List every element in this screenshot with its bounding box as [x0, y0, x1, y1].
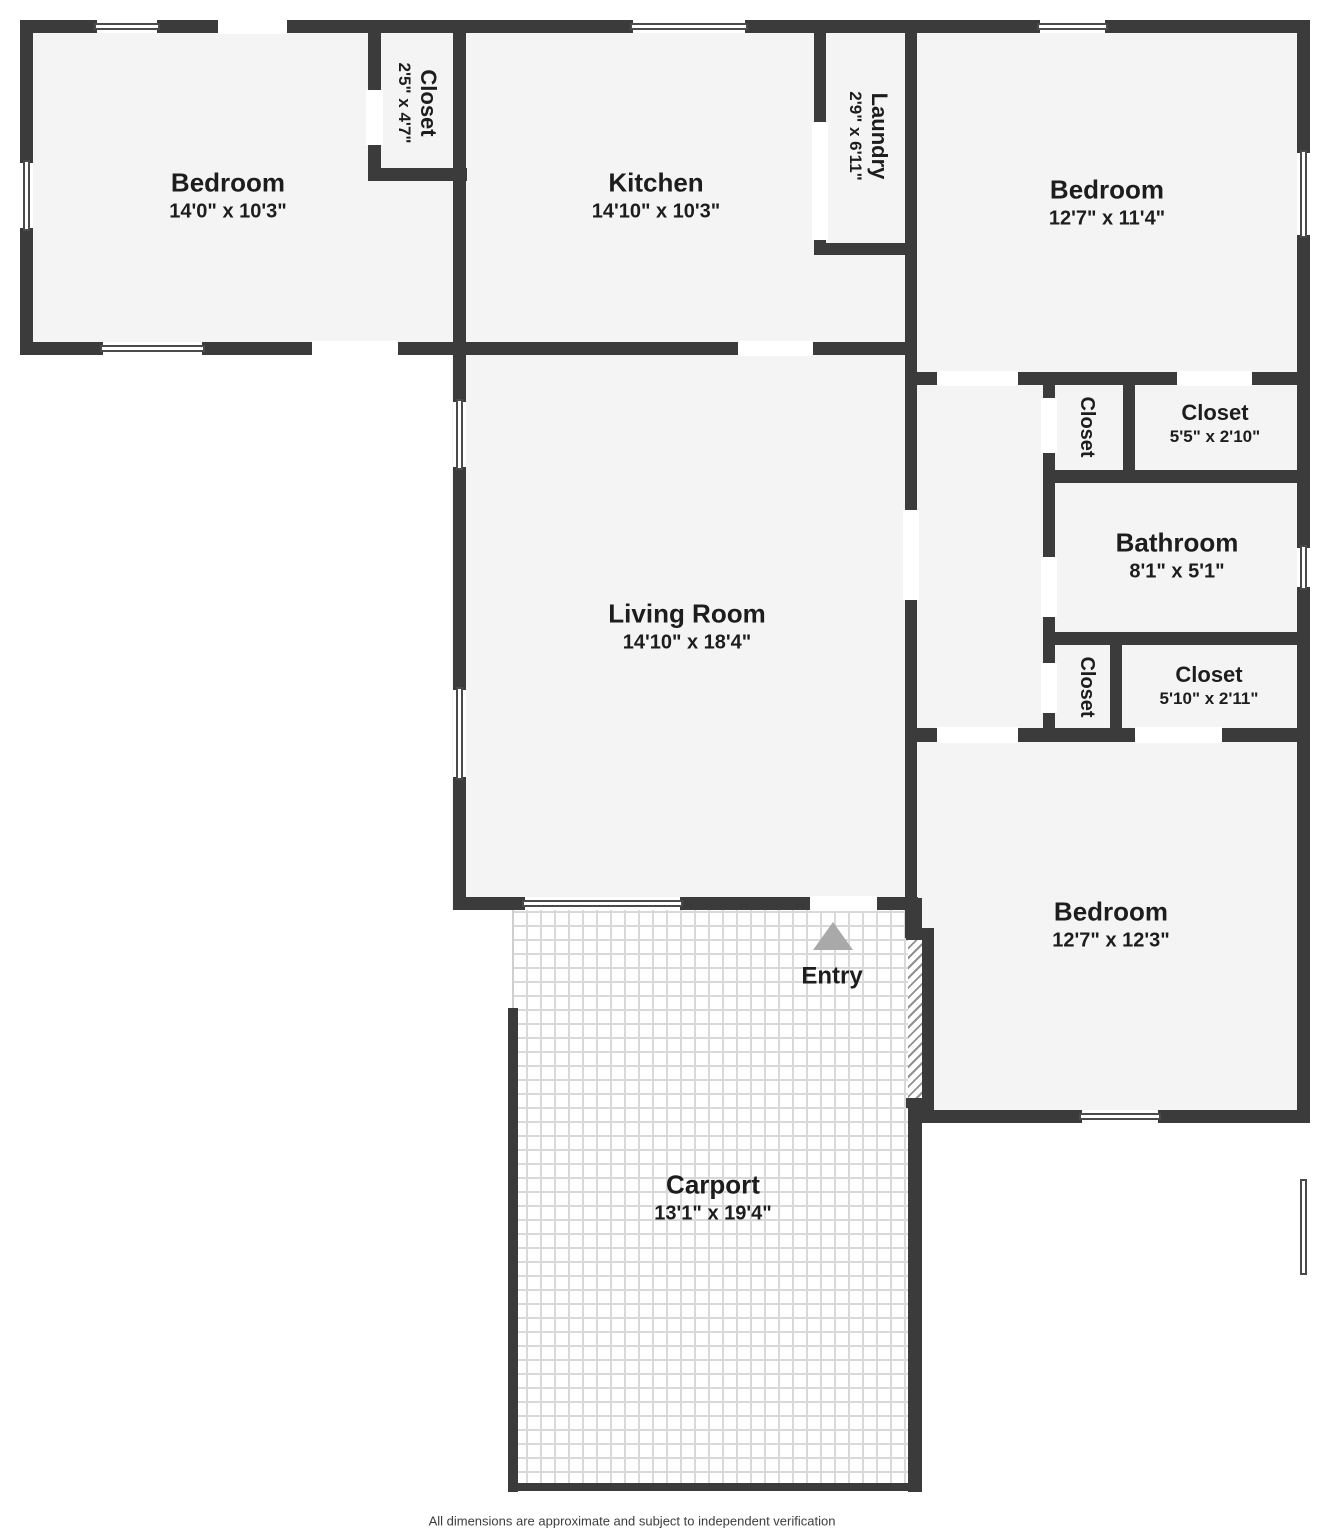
door-living-hall	[903, 510, 919, 600]
opening-top-wall	[218, 19, 287, 34]
window-bedroom-tl-top	[97, 20, 157, 33]
label-bedroom-tr: Bedroom 12'7" x 11'4"	[1049, 174, 1165, 231]
door-hall-bedroom-br	[937, 727, 1018, 743]
room-name: Closet	[1170, 400, 1260, 426]
opening-entry	[810, 896, 877, 911]
room-dims: 14'10" x 10'3"	[592, 199, 721, 225]
room-name: Closet	[1075, 396, 1099, 457]
room-dims: 12'7" x 11'4"	[1049, 206, 1165, 232]
opening-bedroom-tl-bottom	[312, 341, 398, 356]
room-name: Entry	[801, 963, 862, 992]
window-bedroom-tr-right	[1297, 153, 1310, 235]
room-name: Bedroom	[1049, 174, 1165, 205]
hatch-door-cap-top	[906, 930, 924, 940]
window-bedroom-tl-bottom	[103, 342, 202, 355]
door-closet-br	[1135, 727, 1222, 743]
room-name: Bedroom	[1052, 896, 1169, 927]
room-dims: 2'9" x 6'11"	[844, 91, 866, 180]
wall-laundry-bottom	[814, 243, 917, 255]
hatch-door-cap-bottom	[906, 1098, 924, 1108]
window-bedroom-tl-left	[20, 163, 33, 228]
room-dims: 14'10" x 18'4"	[608, 630, 765, 656]
label-closet-hall-bottom: Closet	[1075, 656, 1099, 717]
wall-bathroom-bottom	[1043, 632, 1297, 645]
label-laundry: Laundry 2'9" x 6'11"	[844, 91, 892, 180]
window-living-left-1	[453, 402, 466, 467]
door-closet-tl	[366, 90, 383, 145]
wall-closet-tl-bottom	[368, 168, 467, 181]
room-dims: 14'0" x 10'3"	[169, 199, 286, 225]
window-bedroom-tr-top	[1040, 20, 1105, 33]
label-kitchen: Kitchen 14'10" x 10'3"	[592, 167, 721, 224]
hatch-door	[908, 940, 922, 1098]
window-living-left-2	[453, 690, 466, 777]
room-name: Kitchen	[592, 167, 721, 198]
label-carport: Carport 13'1" x 19'4"	[654, 1169, 771, 1226]
floor-plan: Bedroom 14'0" x 10'3" Closet 2'5" x 4'7"…	[0, 0, 1330, 1536]
room-dims: 13'1" x 19'4"	[654, 1201, 771, 1227]
entry-arrow-icon	[813, 922, 853, 950]
label-bathroom: Bathroom 8'1" x 5'1"	[1116, 527, 1239, 584]
label-bedroom-tl: Bedroom 14'0" x 10'3"	[169, 167, 286, 224]
room-name: Bedroom	[169, 167, 286, 198]
room-dims: 5'10" x 2'11"	[1160, 688, 1259, 710]
label-closet-tl: Closet 2'5" x 4'7"	[393, 63, 441, 144]
room-name: Bathroom	[1116, 527, 1239, 558]
room-name: Living Room	[608, 598, 765, 629]
room-name: Closet	[415, 63, 441, 144]
label-living-room: Living Room 14'10" x 18'4"	[608, 598, 765, 655]
door-kitchen-living	[738, 341, 813, 356]
window-bedroom-br-bottom	[1082, 1110, 1158, 1123]
door-closet-hall-top	[1041, 398, 1057, 453]
label-closet-hall-top: Closet	[1075, 396, 1099, 457]
room-dims: 5'5" x 2'10"	[1170, 426, 1260, 448]
window-kitchen-top	[633, 20, 745, 33]
label-bedroom-br: Bedroom 12'7" x 12'3"	[1052, 896, 1169, 953]
door-bathroom	[1041, 557, 1057, 617]
window-bathroom-right	[1297, 548, 1310, 587]
window-living-bottom	[525, 897, 680, 910]
label-closet-br: Closet 5'10" x 2'11"	[1160, 662, 1259, 710]
disclaimer-text: All dimensions are approximate and subje…	[429, 1514, 836, 1529]
room-name: Carport	[654, 1169, 771, 1200]
wall-kitchen-bedroomtr-divider	[905, 20, 917, 385]
label-closet-tr: Closet 5'5" x 2'10"	[1170, 400, 1260, 448]
room-dims: 8'1" x 5'1"	[1116, 559, 1239, 585]
wall-bedroom-br-left	[922, 928, 934, 1110]
wall-carport-left	[508, 1008, 518, 1492]
room-dims: 2'5" x 4'7"	[393, 63, 415, 144]
carport-edge-line	[512, 905, 514, 1010]
room-name: Closet	[1160, 662, 1259, 688]
room-name: Closet	[1075, 656, 1099, 717]
label-entry: Entry	[801, 963, 862, 992]
room-name: Laundry	[866, 91, 892, 180]
door-bedroom-tr-hall	[937, 371, 1018, 386]
door-closet-hall-bottom	[1041, 663, 1057, 713]
wall-living-right	[905, 385, 917, 938]
window-bedroom-br-right	[1297, 1182, 1310, 1272]
door-closet-tr	[1177, 371, 1252, 386]
wall-closet-hall-top-right	[1123, 385, 1135, 483]
room-dims: 12'7" x 12'3"	[1052, 928, 1169, 954]
wall-carport-bottom	[508, 1483, 922, 1491]
door-laundry	[812, 122, 828, 240]
wall-closet-row-bottom	[1043, 470, 1297, 483]
